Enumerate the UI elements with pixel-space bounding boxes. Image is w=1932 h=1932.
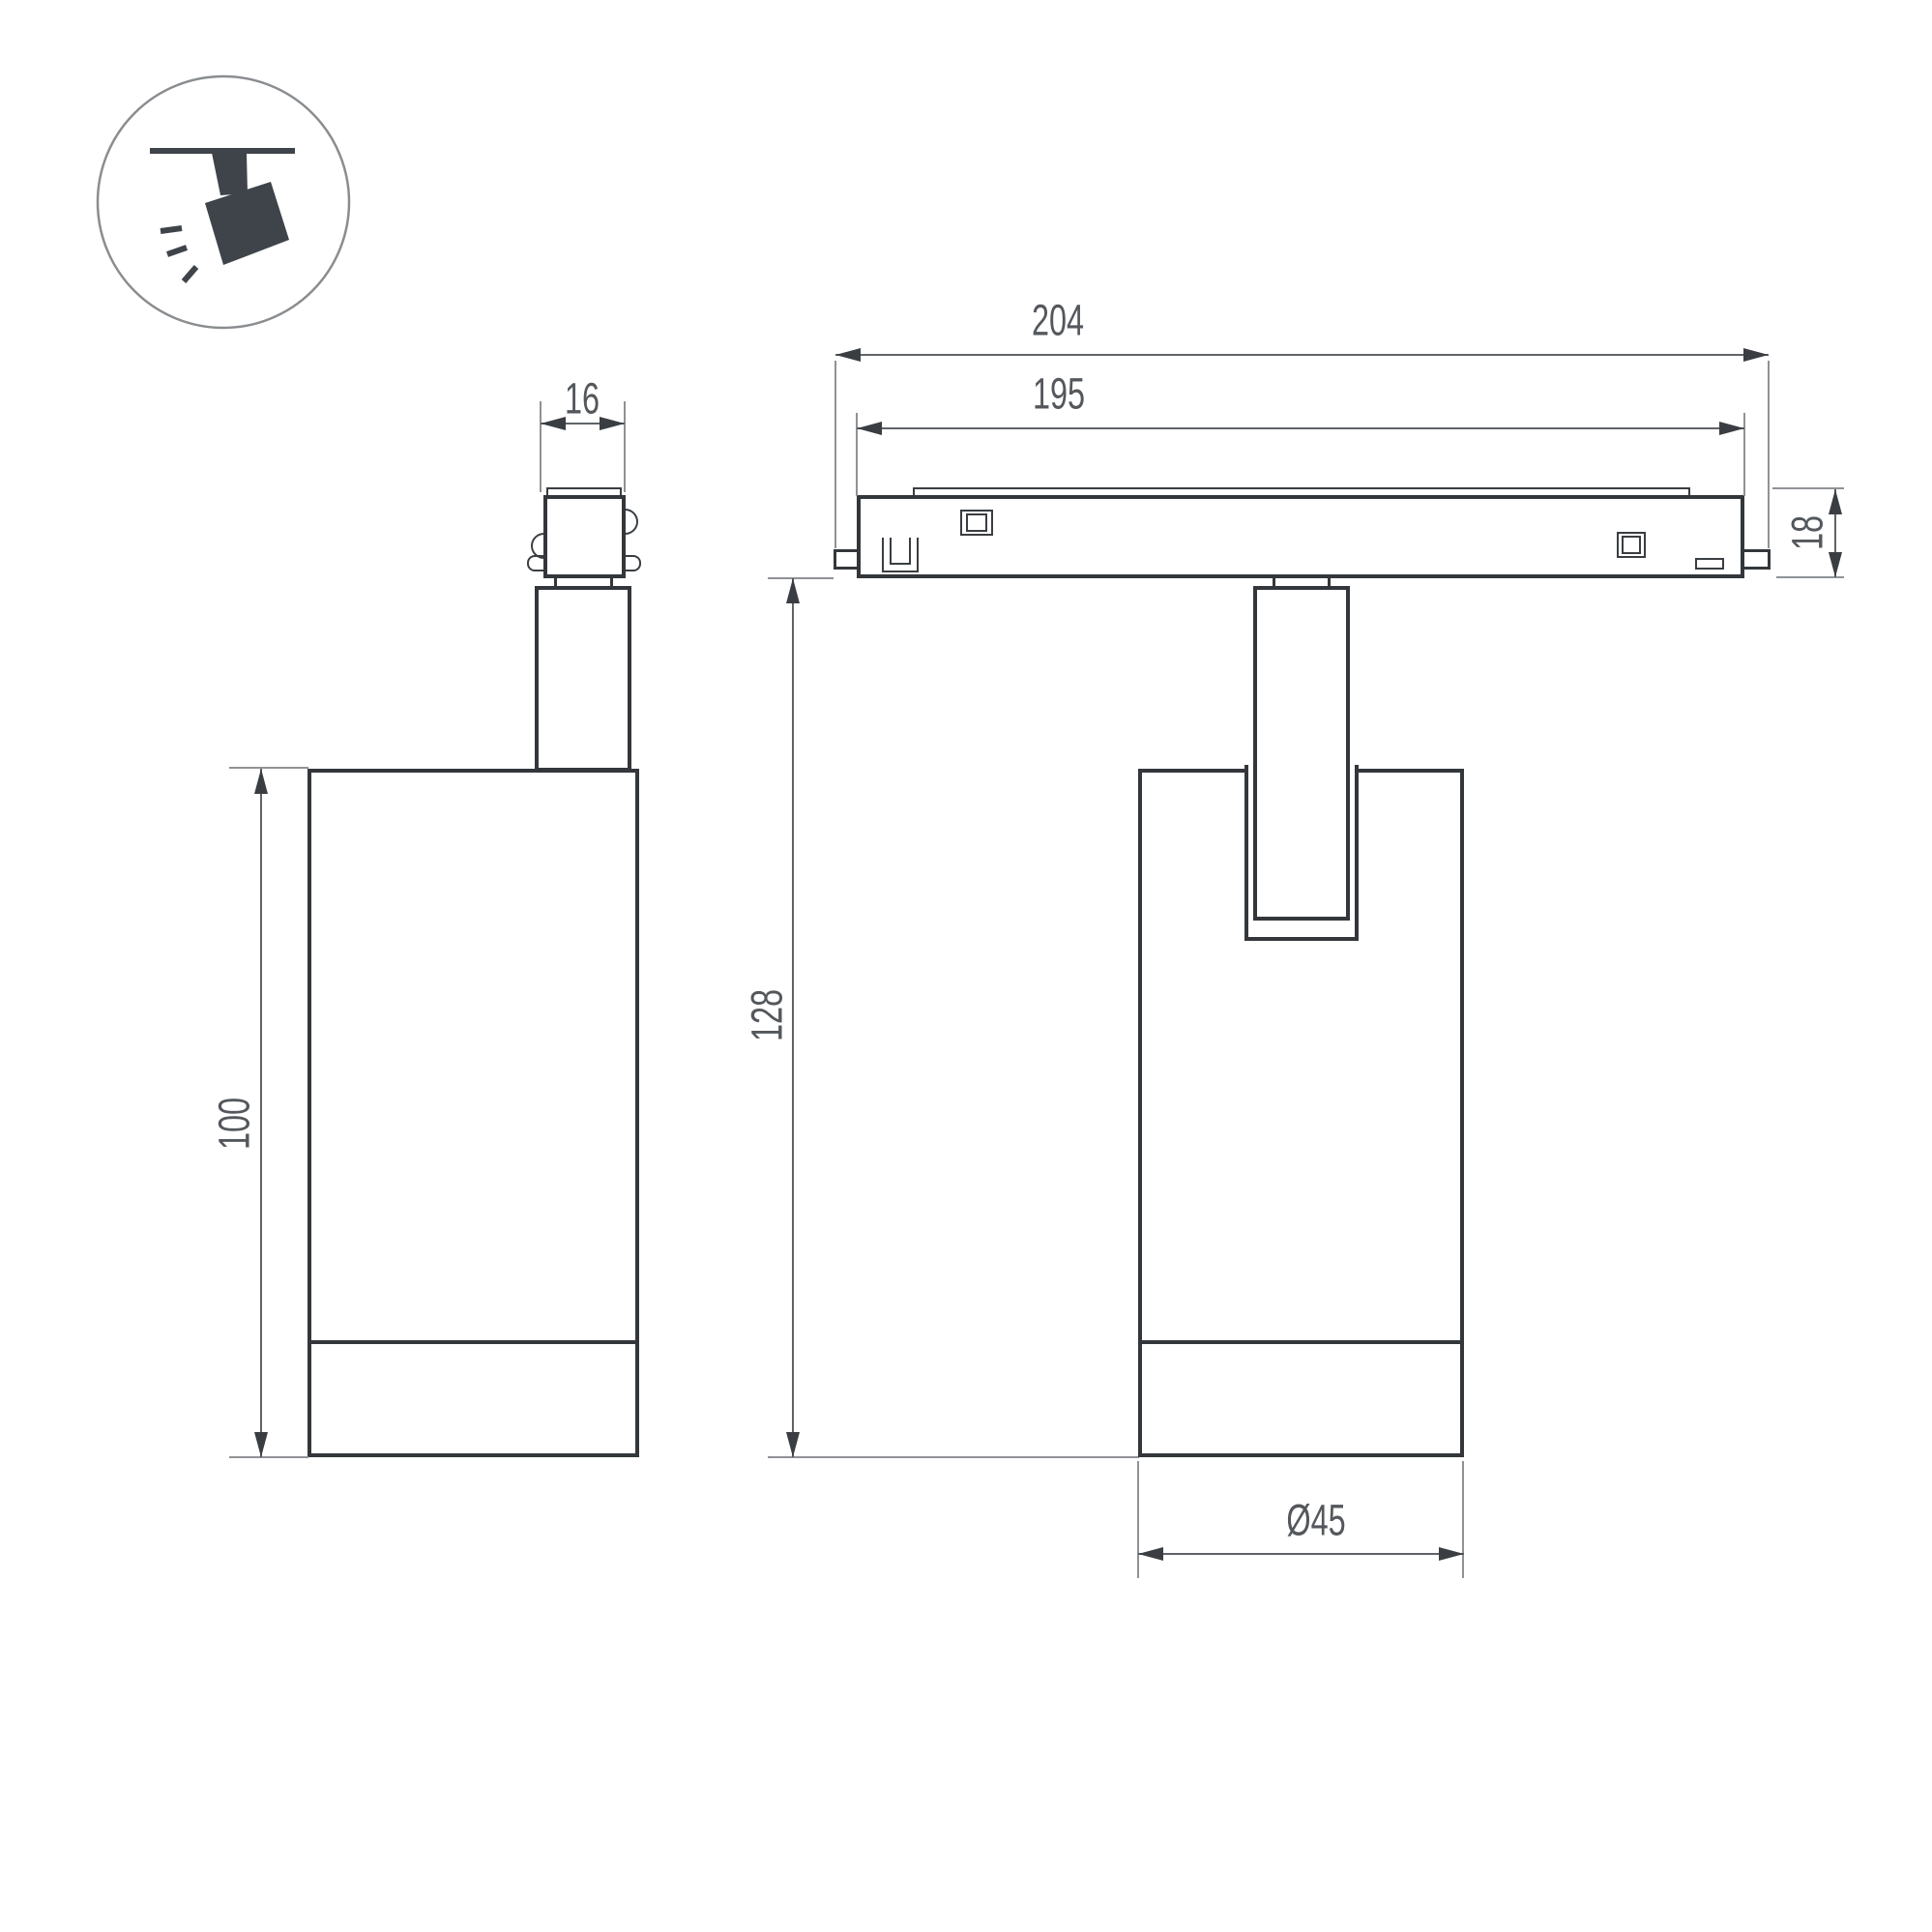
dim18-arrow-bottom [1829,552,1842,577]
dim45-line [1138,1553,1464,1555]
front-body-trim-line [1142,1340,1460,1344]
track-window-right-inner [1622,536,1641,554]
dim16-arrow-left [541,417,566,430]
track-spotlight-icon [77,56,369,348]
dim45-arrow-right [1439,1547,1464,1561]
dim204-arrow-right [1743,348,1769,362]
icon-light-ray [167,248,187,254]
dim100-ext-bottom [229,1456,308,1458]
track-end-tab-right [1741,549,1771,570]
dim128-arrow-top [786,578,800,603]
dim195-line [857,427,1744,429]
dim100-label: 100 [213,1098,256,1150]
icon-light-ray [161,228,182,231]
dim100-arrow-top [254,769,268,794]
side-stem [535,586,631,772]
track-body [857,495,1744,578]
dim18-arrow-top [1829,489,1842,514]
dim16-ext-right [624,401,626,492]
track-window-left-inner [966,513,987,532]
icon-lamp-body [205,182,289,265]
side-body-trim-line [311,1340,635,1344]
dim204-line [835,354,1769,356]
dim128-ext-top [768,577,834,579]
dim16-arrow-right [600,417,625,430]
dim100-ext-top [229,767,308,769]
dim195-arrow-right [1719,422,1744,435]
dim195-arrow-left [857,422,882,435]
dim128-ext-bottom [768,1456,1139,1458]
dimension-drawing: 16 100 204 195 18 128 [0,0,1932,1932]
dim45-label: Ø45 [1286,1499,1345,1542]
dim195-label: 195 [1033,372,1085,416]
dim18-label: 18 [1786,515,1830,550]
dim204-label: 204 [1032,299,1084,342]
side-adapter-head [543,495,626,578]
dim16-ext-left [540,401,542,492]
dim100-line [260,769,262,1457]
icon-mount-stem [212,153,248,195]
track-clip-inner [890,538,911,565]
side-body [307,769,639,1457]
dim100-arrow-bottom [254,1432,268,1457]
dim128-line [792,578,794,1457]
track-slot-right [1695,558,1724,570]
dim128-label: 128 [746,989,789,1041]
front-stem [1253,586,1350,921]
dim204-ext-left [834,361,836,548]
dim128-arrow-bottom [786,1432,800,1457]
dim16-label: 16 [565,377,600,421]
dim204-ext-right [1768,361,1770,548]
dim204-arrow-left [835,348,861,362]
icon-light-ray [184,267,196,281]
dim45-arrow-left [1138,1547,1163,1561]
